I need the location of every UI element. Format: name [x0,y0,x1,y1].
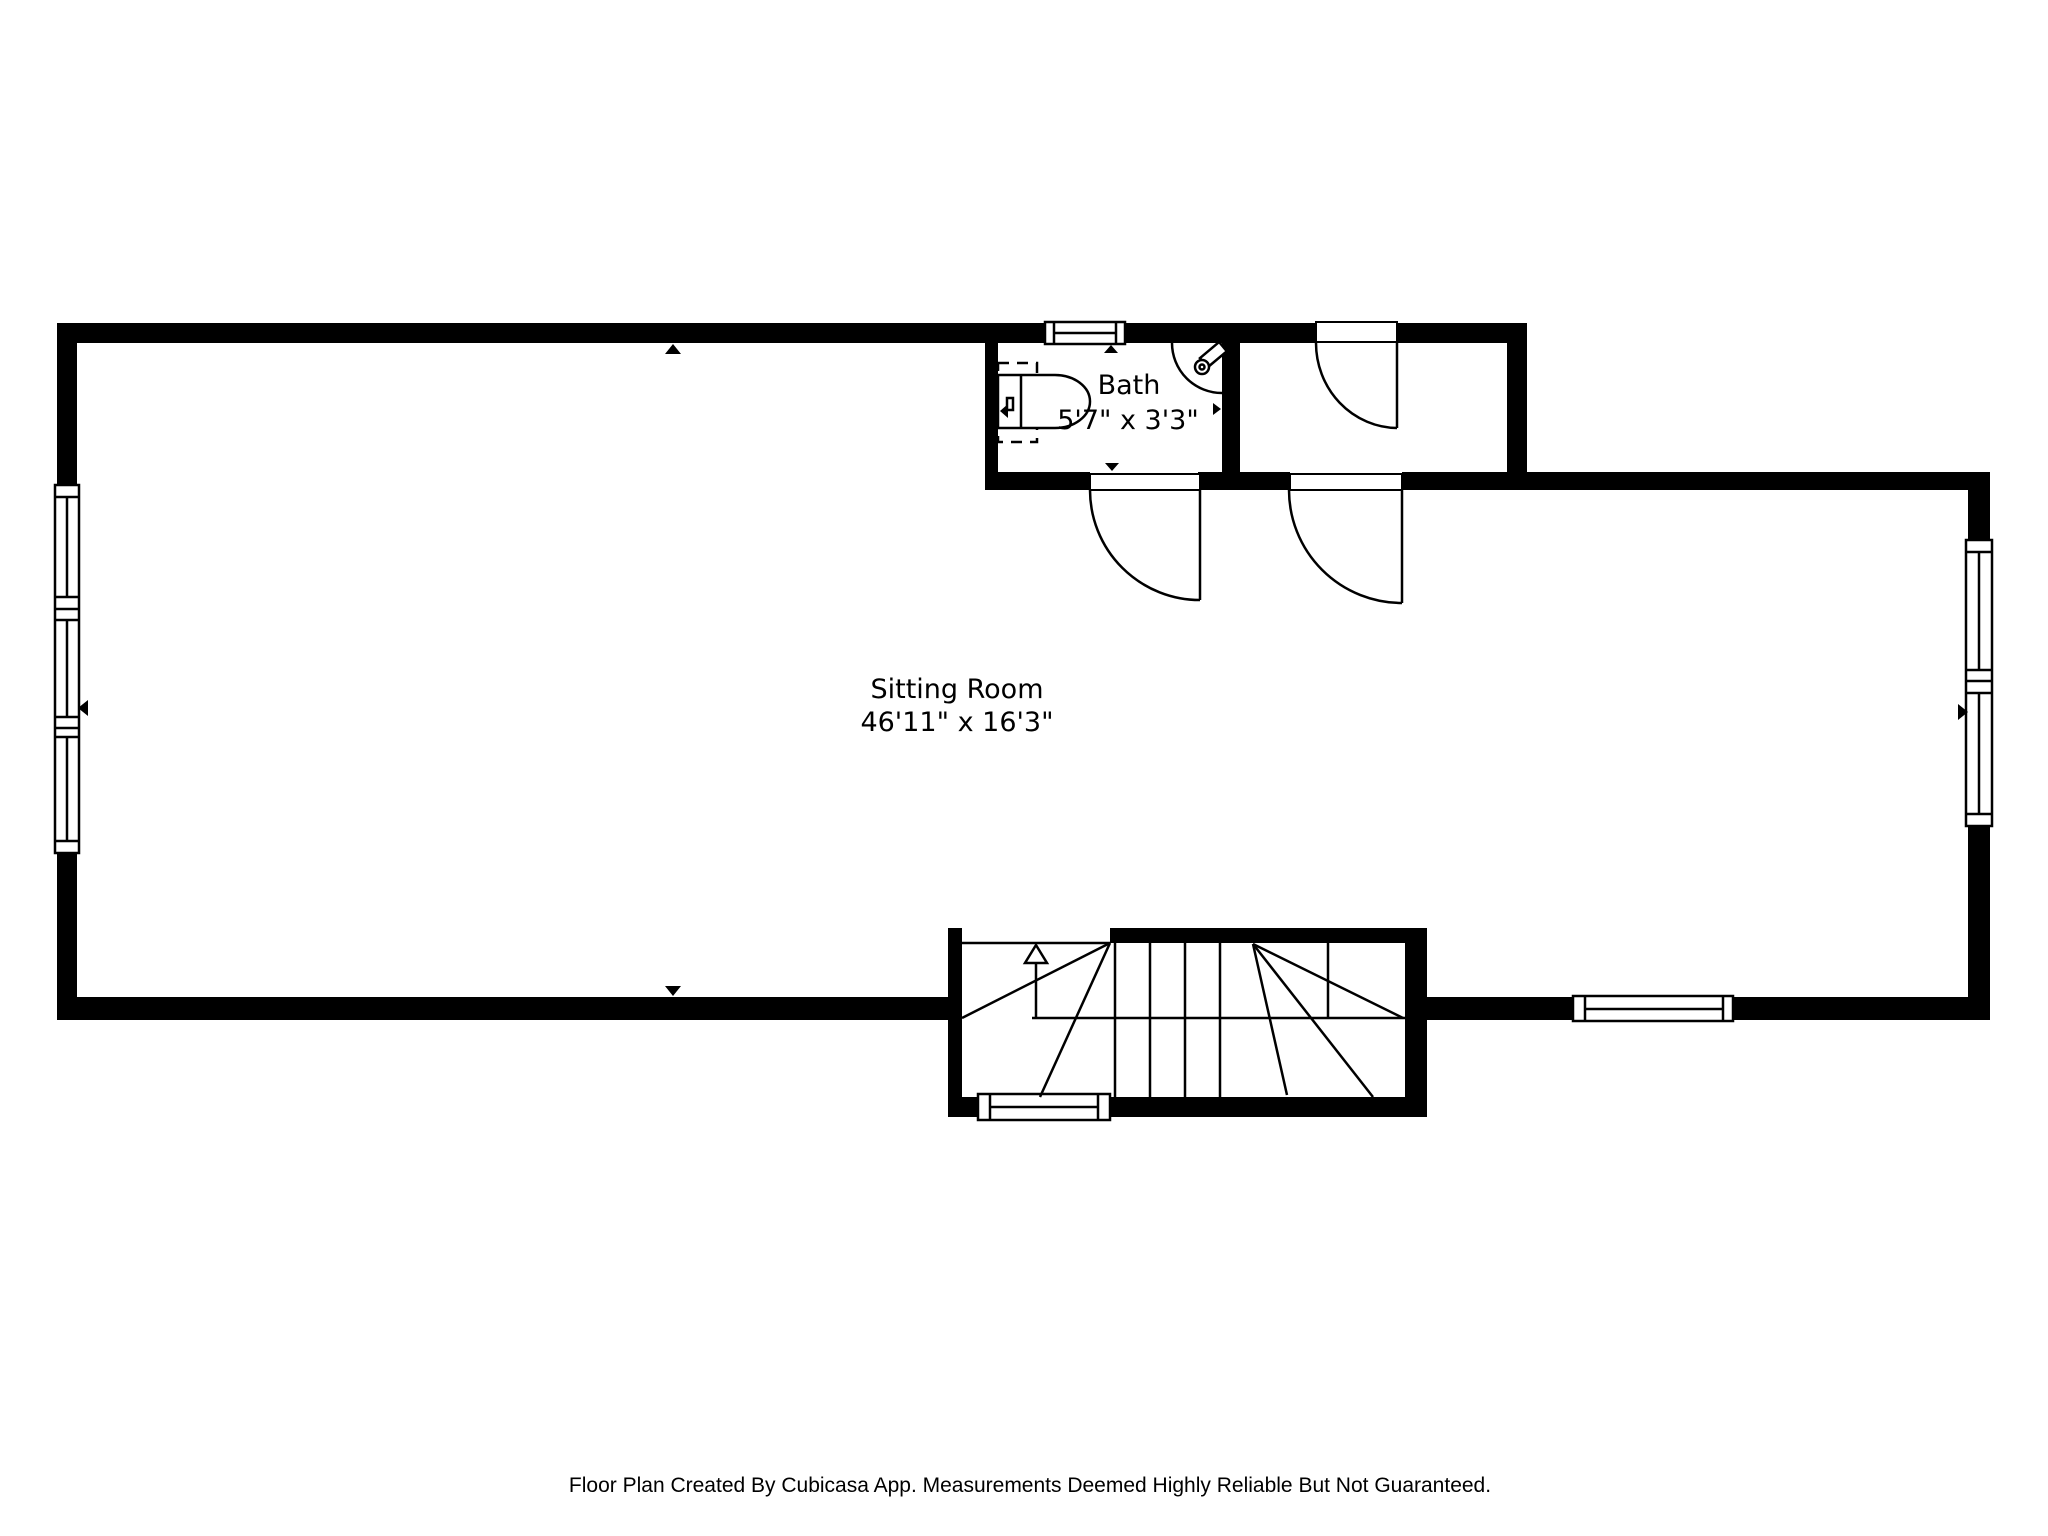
wall-segment-closet-right-step [1507,323,1527,490]
doors [1090,322,1402,603]
wall-direction-marker-icon [665,986,681,996]
sink-drain-inner [1200,365,1205,370]
corner-sink-icon [1172,342,1227,393]
window-bottom-right [1573,996,1733,1021]
window-right-wall [1966,540,1992,826]
stairs-up-arrow-icon [1025,945,1047,963]
window-left-wall [55,485,79,853]
wall-segment-left-upper [57,343,77,485]
wall-direction-marker-icon [1105,463,1119,471]
door-bath-to-sitting-room [1090,474,1200,600]
door-threshold [1090,474,1200,490]
wall-segment-stair-left [948,928,962,1117]
door-swing-arc [1316,343,1397,428]
room-dimensions-sitting-room: 46'11" x 16'3" [860,707,1053,738]
wall-direction-markers [78,344,1968,996]
door-swing-arc [1090,490,1200,600]
door-threshold [1316,322,1397,342]
wall-segment-bath-bottom [985,472,1090,490]
wall-direction-marker-icon [665,344,681,354]
wall-direction-marker-icon [1104,345,1118,353]
door-threshold [1290,474,1402,490]
wall-segment-top-mid [1125,323,1316,343]
floor-plan-page: Bath 5'7" x 3'3" Sitting Room 46'11" x 1… [0,0,2048,1536]
wall-direction-marker-icon [1213,403,1221,415]
room-label-bath: Bath [1098,370,1161,401]
stair-winder-line [1040,943,1110,1097]
room-dimensions-bath: 5'7" x 3'3" [1057,405,1199,436]
footer-disclaimer: Floor Plan Created By Cubicasa App. Meas… [569,1474,1491,1497]
wall-segment-bath-closet-divider [1222,343,1240,490]
wall-segment-bottom-left [57,997,948,1020]
door-swing-arc [1289,490,1402,603]
window-bath [1045,322,1125,344]
room-label-sitting-room: Sitting Room [870,674,1043,705]
wall-segment-stair-right [1405,928,1427,1117]
wall-segment-upper-east [1402,472,1990,490]
door-closet-to-sitting-room [1289,474,1402,603]
wall-segment-stair-top [1110,928,1427,943]
window-stairwell [978,1094,1110,1120]
wall-segment-bath-left [985,343,998,490]
staircase [962,943,1405,1097]
wall-segment-left-lower [57,853,77,1020]
wall-segment-top-left [57,323,1045,343]
door-closet-top [1316,322,1397,428]
floor-plan-drawing: Bath 5'7" x 3'3" Sitting Room 46'11" x 1… [0,0,2048,1536]
wall-segment-closet-bottom-left [1198,472,1290,490]
